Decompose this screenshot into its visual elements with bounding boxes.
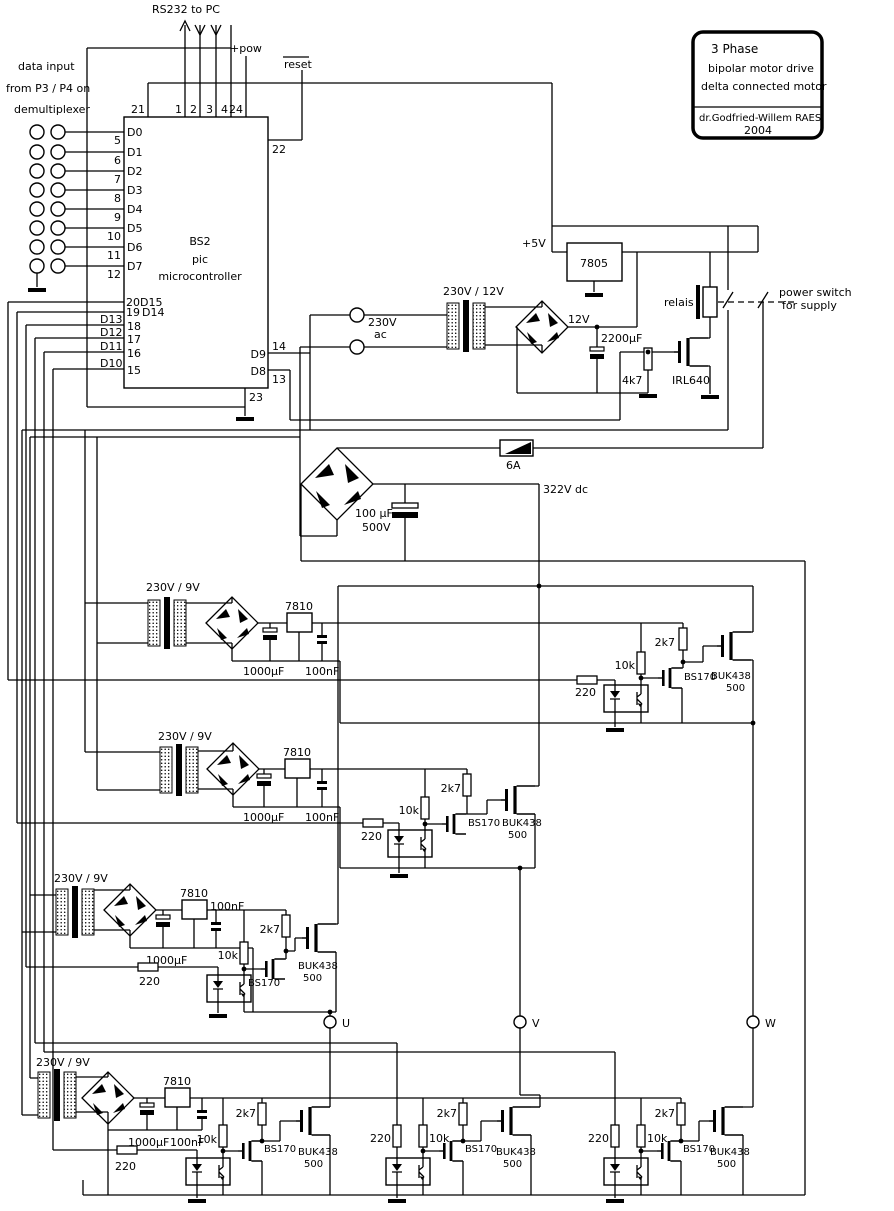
terminal — [51, 125, 65, 139]
resistor-220-label: 220 — [361, 830, 382, 843]
ground-icon — [585, 293, 603, 297]
terminal-u — [324, 1016, 336, 1028]
terminal — [51, 259, 65, 273]
resistor-2k7 — [679, 628, 687, 650]
regulator-7810-label: 7810 — [285, 600, 313, 613]
capacitor-100uf-label: 100 µF — [355, 507, 393, 520]
title-block: 3 Phase bipolar motor drive delta connec… — [693, 32, 827, 138]
terminal — [51, 221, 65, 235]
mains-ac-label: ac — [374, 328, 387, 341]
pin-name: D2 — [127, 165, 142, 178]
terminal — [51, 240, 65, 254]
title-author: dr.Godfried-Willem RAES — [699, 113, 821, 124]
mcu-top-pin-3: 3 — [206, 103, 213, 116]
node-dot — [681, 660, 686, 665]
resistor-10k — [421, 797, 429, 819]
mosfet-buk438-icon — [501, 786, 535, 814]
resistor-2k7 — [282, 915, 290, 937]
regulator-7805-label: 7805 — [580, 257, 608, 270]
node-dot — [328, 1010, 333, 1015]
mosfet-buk438-icon — [717, 632, 751, 660]
relay-label: relais — [664, 296, 694, 309]
pin-num: 15 — [127, 364, 141, 377]
pin-name: D5 — [127, 222, 142, 235]
node-dot — [595, 325, 600, 330]
capacitor-1000uf-icon — [156, 915, 170, 927]
power-switch-label-2: for supply — [782, 299, 837, 312]
pin-name: D4 — [127, 203, 142, 216]
node-dot — [284, 949, 289, 954]
mcu-top-pin-2: 2 — [190, 103, 197, 116]
pin-name: D3 — [127, 184, 142, 197]
mosfet-buk438-label-2: 500 — [503, 1159, 522, 1170]
transformer-230-9-label: 230V / 9V — [146, 581, 200, 594]
capacitor-100nf-icon — [197, 1110, 207, 1119]
v5-label: +5V — [522, 237, 546, 250]
regulator-7810-box — [182, 900, 207, 919]
title-line-2: bipolar motor drive — [708, 62, 814, 75]
capacitor-1000uf-icon — [263, 628, 277, 640]
terminal — [51, 183, 65, 197]
resistor-220-label: 220 — [115, 1160, 136, 1173]
resistor-10k — [219, 1125, 227, 1147]
mcu-pin-23: 23 — [249, 391, 263, 404]
resistor-2k7 — [258, 1103, 266, 1125]
junction-dots — [221, 325, 756, 1154]
ground-icon — [388, 1199, 406, 1203]
transformer-230-9-icon — [148, 597, 186, 649]
pow-label: +pow — [230, 42, 262, 55]
pin-num: 5 — [114, 134, 121, 147]
node-dot — [421, 1149, 426, 1154]
capacitor-100nf-label: 100nF — [305, 665, 339, 678]
mosfet-bs170-icon — [658, 668, 682, 688]
mcu-top-pin-24: 24 — [229, 103, 243, 116]
pin-num-14: 14 — [272, 340, 286, 353]
resistor-2k7-label: 2k7 — [437, 1107, 457, 1120]
power-switch-label-1: power switch — [779, 286, 852, 299]
ground-icon — [236, 417, 254, 421]
schematic-page: RS232 to PC +pow reset data input from P… — [0, 0, 894, 1211]
mosfet-bs170-icon — [238, 1141, 262, 1161]
capacitor-100nf-label: 100nF — [305, 811, 339, 824]
resistor-10k-label: 10k — [615, 659, 636, 672]
node-dot — [639, 676, 644, 681]
pin-name-d8: D8 — [251, 365, 266, 378]
node-dot — [242, 967, 247, 972]
pin-num: 7 — [114, 173, 121, 186]
mosfet-buk438-label-2: 500 — [304, 1159, 323, 1170]
mcu-name-2: pic — [192, 253, 208, 266]
title-line-3: delta connected motor — [701, 80, 827, 93]
resistor-220 — [611, 1125, 619, 1147]
capacitor-100nf-icon — [211, 922, 221, 931]
resistor-2k7-label: 2k7 — [655, 1107, 675, 1120]
optocoupler-icon — [207, 975, 251, 1002]
driver-4: 230V / 9V 1000µF 7810 100nF 220 10k 2k7 … — [36, 1056, 681, 1203]
node-dot — [679, 1139, 684, 1144]
mosfet-buk438-icon — [296, 1107, 330, 1135]
capacitor-500v-label: 500V — [362, 521, 391, 534]
schematic-canvas: RS232 to PC +pow reset data input from P… — [0, 0, 894, 1211]
resistor-4k7-label: 4k7 — [622, 374, 642, 387]
resistor-2k7-label: 2k7 — [260, 923, 280, 936]
mosfet-buk438-label-2: 500 — [508, 830, 527, 841]
capacitor-2200uf-icon — [590, 347, 604, 359]
mosfet-buk438-label: BUK438 — [496, 1147, 536, 1158]
pin-num: 8 — [114, 192, 121, 205]
relay-bar — [696, 285, 700, 319]
data-input-label-3: demultiplexer — [14, 103, 90, 116]
mcu-top-pin-21: 21 — [131, 103, 145, 116]
mosfet-buk438-label: BUK438 — [298, 961, 338, 972]
pin-num: 16 — [127, 347, 141, 360]
title-year: 2004 — [744, 124, 772, 137]
regulator-7810-label: 7810 — [283, 746, 311, 759]
transformer-230-9-label: 230V / 9V — [158, 730, 212, 743]
capacitor-1000uf-label: 1000µF — [243, 811, 284, 824]
terminal — [30, 240, 44, 254]
mains-terminal — [350, 308, 364, 322]
resistor-2k7-label: 2k7 — [655, 636, 675, 649]
resistor-220-label: 220 — [139, 975, 160, 988]
psu-wires — [300, 83, 763, 536]
node-dot — [537, 584, 542, 589]
output-u-label: U — [342, 1017, 350, 1030]
resistor-10k — [637, 652, 645, 674]
resistor-220-label: 220 — [588, 1132, 609, 1145]
pin-num: 17 — [127, 333, 141, 346]
dc-voltage-label: 322V dc — [543, 483, 588, 496]
pin-name: D7 — [127, 260, 142, 273]
ground-icon — [188, 1199, 206, 1203]
transformer-230-9-label: 230V / 9V — [54, 872, 108, 885]
ground-icon — [639, 394, 657, 398]
transformer-230-9-icon — [38, 1069, 76, 1121]
node-dot — [423, 822, 428, 827]
transformer-230-9-icon — [56, 886, 94, 938]
terminal — [30, 125, 44, 139]
transformer-230-12-icon — [447, 300, 485, 352]
ground-icon — [209, 1014, 227, 1018]
mosfet-buk438-icon — [302, 924, 336, 952]
node-dot — [221, 1149, 226, 1154]
mosfet-bs170-label: BS170 — [465, 1144, 497, 1155]
driver-5: 220 10k 2k7 BS170 BUK438 500 — [35, 1043, 540, 1203]
bridge-rectifier-icon — [206, 597, 258, 649]
pin-name: D11 — [100, 340, 122, 353]
switch-contacts — [723, 292, 768, 308]
driver-1: 230V / 9V 1000µF 7810 100nF 220 10k 2k7 … — [8, 581, 753, 1016]
output-w-label: W — [765, 1017, 776, 1030]
capacitor-1000uf-label: 1000µF — [243, 665, 284, 678]
capacitor-100nf-icon — [317, 635, 327, 644]
pin-name: D12 — [100, 326, 122, 339]
regulator-7810-label: 7810 — [163, 1075, 191, 1088]
resistor-220 — [363, 819, 383, 827]
ground-icon — [390, 874, 408, 878]
v12-label: 12V — [568, 313, 590, 326]
pin-num: 10 — [107, 230, 121, 243]
pin-num: 19 — [126, 306, 140, 319]
resistor-2k7-label: 2k7 — [236, 1107, 256, 1120]
pin-num: 11 — [107, 249, 121, 262]
mosfet-buk438-label-2: 500 — [726, 683, 745, 694]
node-dot — [646, 350, 651, 355]
mcu-pin-22: 22 — [272, 143, 286, 156]
fuse-label: 6A — [506, 459, 521, 472]
capacitor-1000uf-icon — [257, 774, 271, 786]
connector-pins — [30, 125, 65, 273]
resistor-2k7 — [463, 774, 471, 796]
ground-icon — [28, 288, 46, 292]
terminal — [30, 145, 44, 159]
terminal-w — [747, 1016, 759, 1028]
bridge-rectifier-icon — [104, 884, 156, 936]
optocoupler-icon — [186, 1158, 230, 1185]
dc-bus-wires — [83, 448, 805, 1195]
capacitor-2200uf-label: 2200µF — [601, 332, 642, 345]
resistor-220-label: 220 — [575, 686, 596, 699]
mains-terminal — [350, 340, 364, 354]
optocoupler-icon — [386, 1158, 430, 1185]
resistor-2k7-label: 2k7 — [441, 782, 461, 795]
pin-name: D10 — [100, 357, 122, 370]
driver-wires — [53, 1072, 681, 1198]
pin-num: 12 — [107, 268, 121, 281]
resistor-10k — [419, 1125, 427, 1147]
mcu-name-3: microcontroller — [158, 270, 242, 283]
power-supply-section: 7805 +5V 230V / 12V 230V ac 12V 2200µF r… — [300, 83, 852, 536]
regulator-7810-box — [285, 759, 310, 778]
pin-num: 9 — [114, 211, 121, 224]
mosfet-buk438-label-2: 500 — [717, 1159, 736, 1170]
resistor-10k-label: 10k — [429, 1132, 450, 1145]
node-dot — [518, 866, 523, 871]
node-dot — [260, 1139, 265, 1144]
mosfet-buk438-icon — [497, 1107, 531, 1135]
terminal — [30, 164, 44, 178]
node-dot — [461, 1139, 466, 1144]
pin-num: 6 — [114, 154, 121, 167]
optocoupler-icon — [604, 685, 648, 712]
pin-num: 18 — [127, 320, 141, 333]
resistor-10k — [637, 1125, 645, 1147]
relay-coil-icon — [703, 287, 717, 317]
title-line-1: 3 Phase — [711, 42, 758, 56]
mosfet-bs170-label: BS170 — [248, 978, 280, 989]
terminal — [30, 202, 44, 216]
transformer-230-9-label: 230V / 9V — [36, 1056, 90, 1069]
ground-icon — [701, 395, 719, 399]
capacitor-1000uf-icon — [140, 1103, 154, 1115]
terminal — [51, 202, 65, 216]
mcu-top-pin-4: 4 — [221, 103, 228, 116]
resistor-220-label: 220 — [370, 1132, 391, 1145]
pin-num-13: 13 — [272, 373, 286, 386]
regulator-7810-label: 7810 — [180, 887, 208, 900]
resistor-220 — [393, 1125, 401, 1147]
mosfet-irl640-label: IRL640 — [672, 374, 710, 387]
terminal-v — [514, 1016, 526, 1028]
pin-name: D1 — [127, 146, 142, 159]
terminal — [30, 183, 44, 197]
data-input-label-2: from P3 / P4 on — [6, 82, 90, 95]
resistor-220 — [117, 1146, 137, 1154]
ground-icon — [606, 728, 624, 732]
data-input-label-1: data input — [18, 60, 75, 73]
pin-name: D14 — [142, 306, 164, 319]
terminal — [51, 164, 65, 178]
resistor-2k7 — [459, 1103, 467, 1125]
optocoupler-icon — [388, 830, 432, 857]
pin-name-d9: D9 — [251, 348, 266, 361]
mosfet-buk438-icon — [709, 1107, 743, 1135]
transformer-230-9-icon — [160, 744, 198, 796]
regulator-7810-box — [165, 1088, 190, 1107]
pin-name: D13 — [100, 313, 122, 326]
resistor-10k-label: 10k — [399, 804, 420, 817]
pin-name: D0 — [127, 126, 142, 139]
mosfet-bs170-icon — [442, 814, 466, 834]
reset-label: reset — [284, 58, 313, 71]
resistor-2k7 — [677, 1103, 685, 1125]
bus-wires — [8, 302, 124, 1150]
mosfet-bs170-label: BS170 — [264, 1144, 296, 1155]
mosfet-bs170-label: BS170 — [468, 818, 500, 829]
driver-3: 230V / 9V 1000µF 7810 100nF 220 10k 2k7 … — [26, 872, 338, 1018]
terminal — [30, 221, 44, 235]
capacitor-100nf-label: 100nF — [210, 900, 244, 913]
mcu-top-pin-1: 1 — [175, 103, 182, 116]
resistor-10k-label: 10k — [197, 1133, 218, 1146]
mosfet-bs170-icon — [261, 959, 285, 979]
transformer-230-12-label: 230V / 12V — [443, 285, 504, 298]
resistor-10k-label: 10k — [647, 1132, 668, 1145]
rs232-label: RS232 to PC — [152, 3, 220, 16]
mosfet-buk438-label: BUK438 — [298, 1147, 338, 1158]
mosfet-irl640-icon — [674, 338, 708, 366]
terminal — [30, 259, 44, 273]
resistor-220 — [577, 676, 597, 684]
resistor-220 — [138, 963, 158, 971]
resistor-10k-label: 10k — [218, 949, 239, 962]
dc-bus-section: 100 µF 500V 6A 322V dc — [83, 440, 805, 1195]
node-dot — [639, 1149, 644, 1154]
mosfet-buk438-label: BUK438 — [710, 1147, 750, 1158]
mosfet-buk438-label-2: 500 — [303, 973, 322, 984]
header-labels: RS232 to PC +pow reset data input from P… — [6, 3, 313, 116]
terminal — [51, 145, 65, 159]
output-v-label: V — [532, 1017, 540, 1030]
node-dot — [751, 721, 756, 726]
regulator-7810-box — [287, 613, 312, 632]
pin-name: D6 — [127, 241, 142, 254]
capacitor-100nf-icon — [317, 781, 327, 790]
ground-icon — [606, 1199, 624, 1203]
mcu-bus-rows: 20 D15 19 D14 18 D13 17 D12 16 D11 15 D1… — [8, 296, 164, 1150]
mosfet-buk438-label: BUK438 — [502, 818, 542, 829]
resistor-10k — [240, 942, 248, 964]
capacitor-100uf-icon — [392, 503, 418, 518]
mcu-name-1: BS2 — [189, 235, 210, 248]
optocoupler-icon — [604, 1158, 648, 1185]
mosfet-buk438-label: BUK438 — [711, 671, 751, 682]
